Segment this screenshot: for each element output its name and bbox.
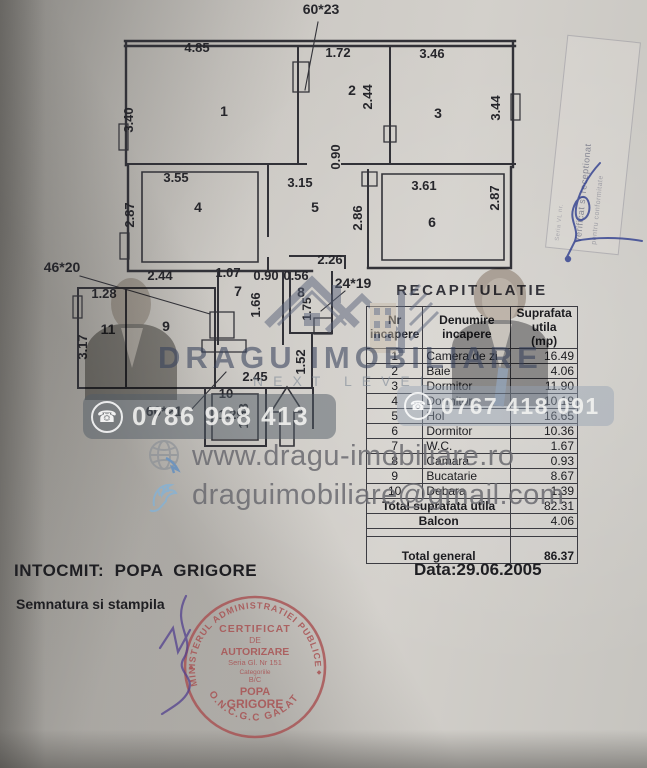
svg-text:◆: ◆ [317,670,322,676]
svg-text:B/C: B/C [249,675,262,684]
svg-text:DE: DE [249,635,261,645]
date-line: Data:29.06.2005 [414,560,542,580]
phone-bar-right: ☎ 0767 418 091 [397,386,614,426]
blue-signature [545,145,647,270]
dimension-label: 46*20 [44,259,81,275]
dimension-label: 4.85 [184,40,209,55]
dimension-label: 3.40 [121,107,136,132]
balcon-label: Balcon [367,514,511,529]
dimension-label: 1.72 [325,45,350,60]
purple-signature [160,596,190,714]
svg-text:◆: ◆ [189,665,194,671]
recap-row: 6Dormitor10.36 [367,424,578,439]
semnatura-label: Semnatura si stampila [16,596,165,612]
phone-icon: ☎ [91,401,123,433]
agent-photo-male [85,276,177,400]
balcon-row: Balcon 4.06 [367,514,578,529]
dimension-label: 0.90 [328,144,343,169]
svg-text:Seria Gl. Nr 151: Seria Gl. Nr 151 [228,658,282,667]
phone-bar-left: ☎ 0786 968 413 [83,394,336,439]
dimension-label: 3 [434,105,442,121]
phone-number-right: 0767 418 091 [441,393,600,420]
inner-walls-upper [127,46,515,271]
dimension-label: 60*23 [303,1,340,17]
svg-text:GRIGORE: GRIGORE [227,697,284,711]
dimension-label: 3.55 [163,170,188,185]
dimension-label: 1 [220,103,228,119]
dimension-label: 2.87 [122,202,137,227]
dimension-label: 5 [311,199,319,215]
balcon-value: 4.06 [511,514,578,529]
website-row: www.dragu-imobiliare.ro [146,438,515,474]
spacer-row [367,529,578,537]
dimension-label: 2 [348,82,356,98]
svg-text:AUTORIZARE: AUTORIZARE [221,646,290,658]
phone-number-left: 0786 968 413 [132,401,309,432]
dimension-label: 3.15 [287,175,312,190]
dimension-label: 3.44 [488,95,503,121]
dimension-label: 3.61 [411,178,436,193]
brand-watermark: DRAGU IMOBILIARE [158,340,543,376]
svg-text:CERTIFICAT: CERTIFICAT [219,623,291,635]
dimension-label: 2.86 [350,205,365,230]
round-stamp: MINISTERUL ADMINISTRATIEI PUBLICE O.N.C.… [150,570,365,768]
dimension-label: 3.46 [419,46,444,61]
phone-icon: ☎ [404,392,432,420]
email-row: draguimobiliare@gmail.com [146,476,564,514]
website-url: www.dragu-imobiliare.ro [192,440,515,473]
hand-icon [146,476,182,514]
dimension-label: 2.87 [487,185,502,210]
dimension-label: 6 [428,214,436,230]
email-address: draguimobiliare@gmail.com [192,479,564,512]
dimension-label: 2.44 [360,84,375,110]
globe-icon [146,438,182,474]
outer-walls [125,41,515,271]
dimension-label: 4 [194,199,202,215]
